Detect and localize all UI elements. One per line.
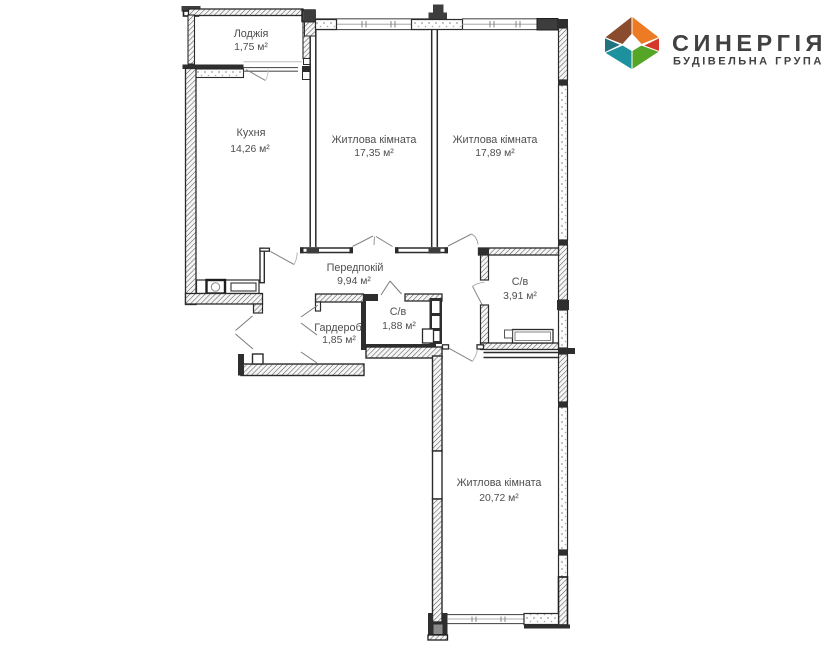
svg-text:Житлова кімната: Житлова кімната <box>332 134 417 146</box>
svg-text:1,85 м²: 1,85 м² <box>322 335 356 346</box>
svg-text:9,94 м²: 9,94 м² <box>337 276 371 287</box>
svg-text:17,89 м²: 17,89 м² <box>475 148 515 159</box>
svg-text:20,72 м²: 20,72 м² <box>479 493 519 504</box>
svg-text:БУДІВЕЛЬНА ГРУПА: БУДІВЕЛЬНА ГРУПА <box>673 56 824 68</box>
svg-text:Житлова кімната: Житлова кімната <box>457 477 542 489</box>
svg-text:Лоджія: Лоджія <box>234 28 269 40</box>
svg-text:14,26 м²: 14,26 м² <box>230 144 270 155</box>
svg-text:1,88 м²: 1,88 м² <box>382 321 416 332</box>
svg-text:3,91 м²: 3,91 м² <box>503 291 537 302</box>
svg-text:Житлова кімната: Житлова кімната <box>453 134 538 146</box>
svg-text:Передпокій: Передпокій <box>327 262 384 274</box>
svg-text:СИНЕРГІЯ: СИНЕРГІЯ <box>672 30 826 56</box>
svg-text:17,35 м²: 17,35 м² <box>354 148 394 159</box>
svg-text:С/в: С/в <box>512 276 529 288</box>
svg-text:Гардероб: Гардероб <box>314 322 362 334</box>
svg-text:Кухня: Кухня <box>237 127 266 139</box>
svg-text:1,75 м²: 1,75 м² <box>234 42 268 53</box>
svg-text:С/в: С/в <box>390 306 407 318</box>
